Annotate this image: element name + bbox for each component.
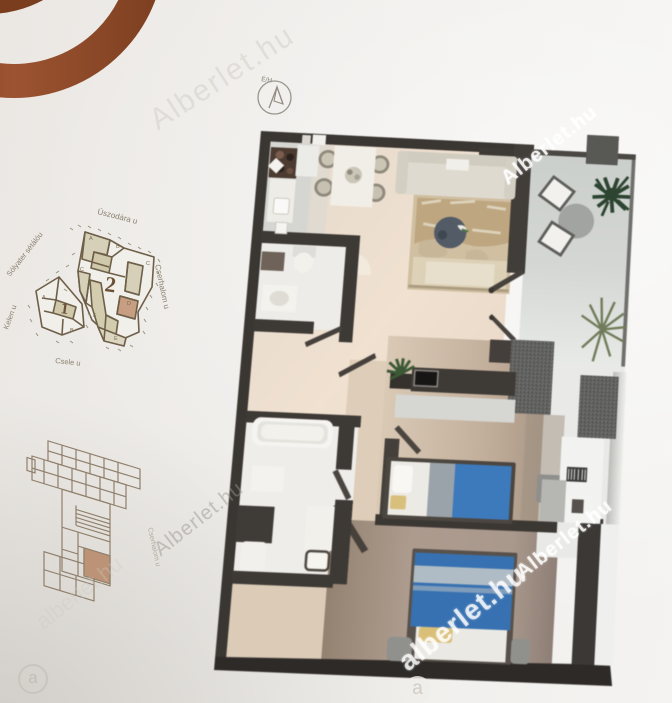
svg-text:Úszodára u: Úszodára u	[97, 207, 139, 226]
svg-text:C: C	[80, 267, 84, 273]
svg-text:Cserhalom u: Cserhalom u	[153, 264, 171, 310]
svg-text:D: D	[127, 301, 131, 307]
svg-text:Sólyater sétálóu: Sólyater sétálóu	[4, 230, 44, 278]
svg-text:E: E	[114, 336, 118, 342]
svg-text:B: B	[116, 244, 120, 250]
svg-text:B: B	[70, 328, 74, 334]
svg-text:Kelen u: Kelen u	[1, 304, 18, 331]
svg-text:A: A	[89, 236, 93, 242]
svg-text:Csele u: Csele u	[55, 356, 81, 368]
svg-text:C: C	[146, 261, 150, 267]
svg-text:A: A	[42, 295, 46, 301]
